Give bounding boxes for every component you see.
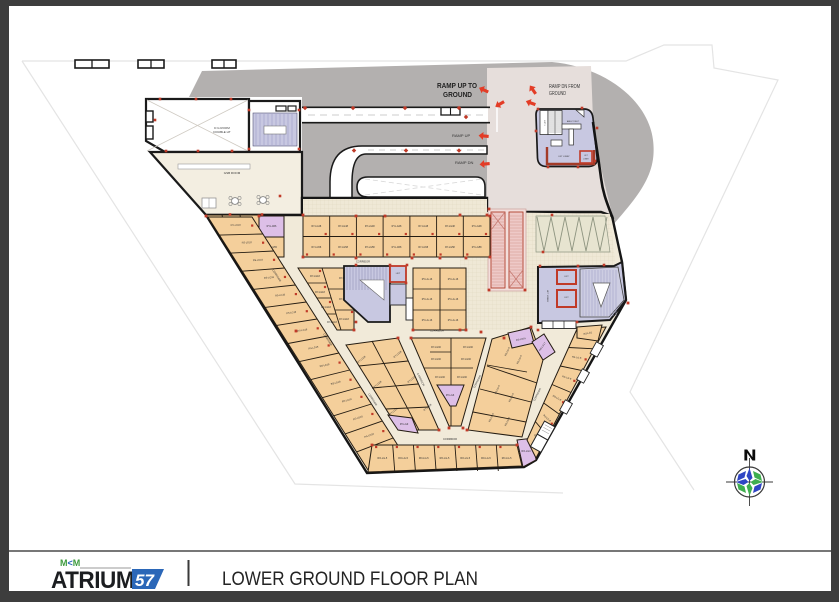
svg-text:RAMP DN FROM: RAMP DN FROM xyxy=(549,84,580,90)
svg-text:GROUND: GROUND xyxy=(443,90,472,99)
svg-text:RY-LG58: RY-LG58 xyxy=(392,246,402,249)
svg-text:RY-LG18: RY-LG18 xyxy=(327,321,337,324)
svg-text:RY-LG48: RY-LG48 xyxy=(365,225,375,228)
svg-text:RY-LG30: RY-LG30 xyxy=(463,346,473,349)
svg-text:LOWER GROUND FLOOR PLAN: LOWER GROUND FLOOR PLAN xyxy=(222,568,478,590)
svg-text:RY-LG48: RY-LG48 xyxy=(472,225,482,228)
svg-text:RY-LG18: RY-LG18 xyxy=(321,306,331,309)
svg-text:RY-LG48: RY-LG48 xyxy=(418,225,428,228)
svg-text:RY-LG58: RY-LG58 xyxy=(445,246,455,249)
svg-text:RO-LG-5: RO-LG-5 xyxy=(398,457,408,460)
svg-text:LIFT: LIFT xyxy=(564,276,569,278)
svg-text:RY-LG58: RY-LG58 xyxy=(472,246,482,249)
svg-text:RY-LG18: RY-LG18 xyxy=(315,291,325,294)
svg-text:RY-LG58: RY-LG58 xyxy=(312,246,322,249)
svg-text:RO-LG-5: RO-LG-5 xyxy=(378,457,388,460)
svg-text:GROUND: GROUND xyxy=(549,91,566,97)
svg-text:CORRIDOR: CORRIDOR xyxy=(430,329,444,333)
svg-text:RY-LG-16: RY-LG-16 xyxy=(422,298,433,301)
svg-text:RY-LG18: RY-LG18 xyxy=(339,318,349,321)
svg-text:CORRIDOR: CORRIDOR xyxy=(443,437,457,441)
svg-text:ATRIUM: ATRIUM xyxy=(51,566,134,593)
svg-text:RY-LG9: RY-LG9 xyxy=(400,423,409,426)
svg-text:RAMP DN: RAMP DN xyxy=(455,160,473,165)
svg-text:57: 57 xyxy=(135,571,155,590)
svg-text:CORRIDOR: CORRIDOR xyxy=(356,260,370,264)
svg-text:RY-LG30: RY-LG30 xyxy=(461,358,471,361)
svg-text:RS-LG18: RS-LG18 xyxy=(231,224,242,227)
svg-text:RY-LG6: RY-LG6 xyxy=(446,394,455,397)
svg-text:RY-LG-16: RY-LG-16 xyxy=(448,278,459,281)
svg-text:RY-LG48: RY-LG48 xyxy=(392,225,402,228)
svg-text:LIFT LOBBY: LIFT LOBBY xyxy=(546,290,548,303)
svg-text:RAMP UP: RAMP UP xyxy=(452,133,470,138)
svg-text:RO-LG-5: RO-LG-5 xyxy=(440,457,450,460)
svg-text:GSB ROOM: GSB ROOM xyxy=(224,171,241,175)
svg-text:RY-LG30: RY-LG30 xyxy=(431,358,441,361)
svg-text:RY-LG58: RY-LG58 xyxy=(338,246,348,249)
svg-text:RY-LG30: RY-LG30 xyxy=(431,346,441,349)
svg-text:RO-LG-5: RO-LG-5 xyxy=(502,457,512,460)
svg-text:LIFT: LIFT xyxy=(396,273,401,275)
svg-text:RY-LG58: RY-LG58 xyxy=(418,246,428,249)
svg-text:RY-LG56: RY-LG56 xyxy=(267,225,277,228)
svg-text:LIFT: LIFT xyxy=(564,297,569,299)
svg-text:LIFT-1: LIFT-1 xyxy=(543,120,545,125)
svg-text:RY-LG48: RY-LG48 xyxy=(338,225,348,228)
svg-text:RY-LG-16: RY-LG-16 xyxy=(422,278,433,281)
svg-text:DOUBLE HT: DOUBLE HT xyxy=(213,130,230,134)
svg-text:LOBBY: LOBBY xyxy=(583,159,590,161)
svg-text:RY-LG48: RY-LG48 xyxy=(445,225,455,228)
svg-text:LIFT LOBBY: LIFT LOBBY xyxy=(558,156,570,158)
svg-text:RY-LG-16: RY-LG-16 xyxy=(448,298,459,301)
svg-text:LIFT: LIFT xyxy=(584,155,587,157)
svg-text:RAMP UP TO: RAMP UP TO xyxy=(437,81,477,90)
svg-text:RO-LG4: RO-LG4 xyxy=(522,450,532,453)
svg-text:RO-LG-5: RO-LG-5 xyxy=(460,457,470,460)
svg-text:RY-LG18: RY-LG18 xyxy=(310,275,320,278)
svg-text:RY-LG-16: RY-LG-16 xyxy=(448,319,459,322)
svg-text:RY-LG30: RY-LG30 xyxy=(435,376,445,379)
svg-text:RY-LG48: RY-LG48 xyxy=(312,225,322,228)
svg-text:RO-LG-5: RO-LG-5 xyxy=(481,457,491,460)
svg-text:RS-LG18: RS-LG18 xyxy=(242,241,253,244)
svg-text:RY-LG58: RY-LG58 xyxy=(365,246,375,249)
svg-text:RO-LG-5: RO-LG-5 xyxy=(419,457,429,460)
svg-text:RY-LG-16: RY-LG-16 xyxy=(422,319,433,322)
svg-text:RY-LG30: RY-LG30 xyxy=(457,376,467,379)
svg-text:ABLE TOILET: ABLE TOILET xyxy=(567,120,580,123)
